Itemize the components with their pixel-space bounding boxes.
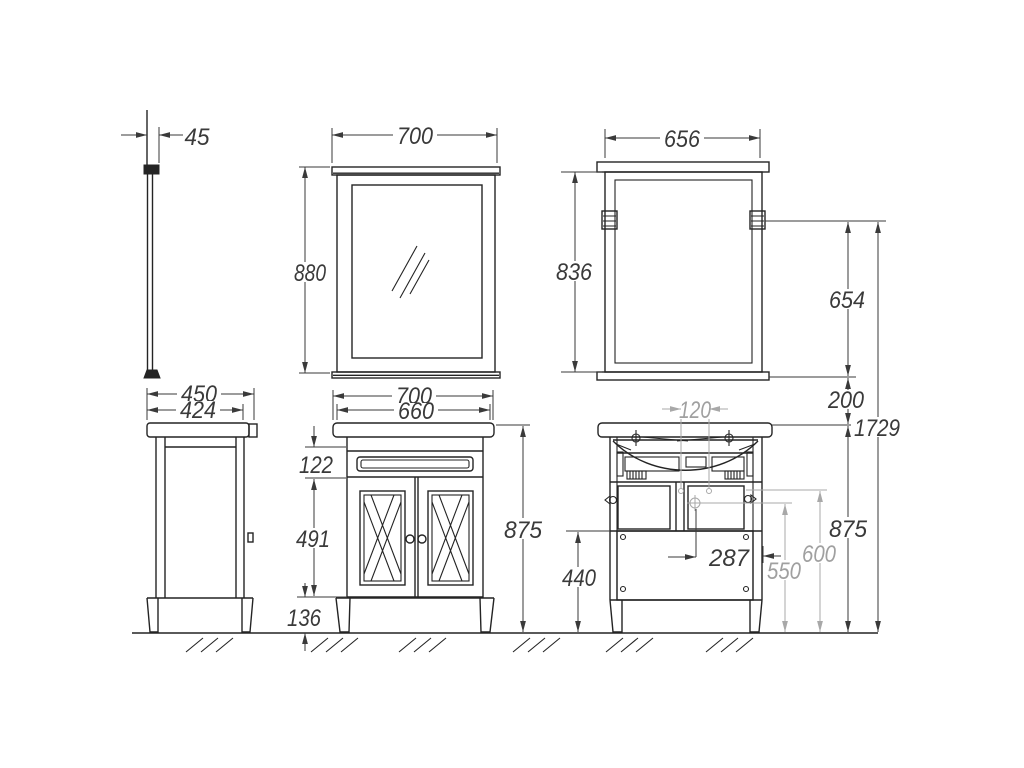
drawer-panel-inner [361, 460, 469, 468]
svg-text:875: 875 [829, 516, 868, 543]
side-view-mirror-profile [144, 110, 160, 378]
rear-right-leg [750, 600, 762, 632]
dim-200-label: 200 [824, 387, 868, 414]
svg-text:491: 491 [296, 526, 330, 553]
dim-660-label: 660 [394, 398, 438, 425]
svg-text:836: 836 [556, 259, 593, 286]
svg-text:136: 136 [287, 605, 322, 632]
svg-text:120: 120 [679, 397, 712, 424]
svg-text:600: 600 [802, 541, 837, 568]
left-support-foot [627, 471, 646, 479]
svg-text:287: 287 [708, 545, 751, 572]
svg-text:654: 654 [829, 287, 865, 314]
front-view-cabinet [333, 423, 494, 632]
floor [132, 633, 878, 652]
dim-440-label: 440 [559, 565, 599, 592]
countertop-front [333, 423, 494, 437]
side-knob [248, 533, 253, 542]
backsplash-tab [249, 424, 257, 437]
dim-120-label: 120 [662, 397, 728, 424]
dim-550-label: 550 [764, 558, 804, 585]
right-door-cross [432, 495, 469, 581]
dim-122-label: 122 [296, 452, 336, 479]
mirror-rear-bottom-cap [597, 372, 769, 380]
svg-text:200: 200 [827, 387, 864, 414]
svg-text:122: 122 [299, 452, 333, 479]
mirror-top-cap-side [144, 165, 159, 174]
side-view-cabinet [147, 423, 257, 632]
front-view-mirror [332, 167, 500, 378]
mirror-bottom-cap-side [144, 370, 160, 378]
countertop-rear [598, 423, 772, 437]
rear-view-cabinet [598, 423, 772, 632]
side-back-leg [242, 598, 253, 632]
front-left-leg [336, 598, 350, 632]
countertop-side [147, 423, 249, 437]
dim-656-label: 656 [660, 126, 704, 153]
svg-text:660: 660 [398, 398, 435, 425]
dim-136-label: 136 [284, 605, 324, 632]
drain-assembly-right [712, 457, 744, 471]
mirror-frame [337, 175, 495, 372]
svg-text:1729: 1729 [854, 415, 900, 442]
inlet-point-left [679, 489, 684, 494]
dim-700-mirror-label: 700 [393, 123, 437, 150]
front-right-leg [480, 598, 494, 632]
right-support-foot [725, 471, 744, 479]
floor-hatching [186, 638, 753, 652]
mirror-rear-frame [605, 172, 762, 372]
left-door-back [618, 486, 670, 529]
side-front-leg [147, 598, 158, 632]
left-door [360, 491, 405, 585]
technical-drawing: 45 880 700 656 836 450 424 700 [0, 0, 1024, 768]
svg-text:45: 45 [185, 124, 211, 151]
mirror-reflection-lines [392, 246, 429, 298]
inlet-point-right [707, 489, 712, 494]
rear-view-mirror [597, 162, 769, 380]
drain-assembly-center [686, 457, 706, 467]
rear-left-leg [610, 600, 622, 632]
svg-text:424: 424 [180, 397, 216, 424]
dim-424-label: 424 [176, 397, 220, 424]
right-door [428, 491, 473, 585]
side-view [144, 110, 257, 632]
dim-287-label: 287 [708, 545, 751, 572]
left-door-knob [406, 535, 414, 543]
panel-screw [744, 587, 749, 592]
svg-text:550: 550 [767, 558, 802, 585]
panel-screw [744, 535, 749, 540]
dim-880-label: 880 [291, 260, 329, 287]
left-hinge [605, 496, 617, 504]
panel-screw [621, 535, 626, 540]
svg-text:875: 875 [504, 517, 543, 544]
dim-836-label: 836 [552, 259, 596, 286]
right-hinge [745, 495, 757, 503]
dim-1729-label: 1729 [851, 415, 903, 442]
right-door-knob [418, 535, 426, 543]
dim-875-rear-label: 875 [826, 516, 870, 543]
mirror-rear-top-cap [597, 162, 769, 172]
dim-654-label: 654 [825, 287, 869, 314]
svg-text:880: 880 [294, 260, 327, 287]
svg-text:440: 440 [562, 565, 597, 592]
svg-text:656: 656 [664, 126, 701, 153]
dim-600-label: 600 [799, 541, 839, 568]
dim-45 [121, 127, 183, 163]
dim-491-label: 491 [293, 526, 333, 553]
left-door-cross [364, 495, 401, 581]
panel-screw [621, 587, 626, 592]
drain-point [687, 495, 703, 511]
mirror-rear-back-panel [615, 180, 752, 363]
dim-875-front-label: 875 [501, 517, 545, 544]
svg-text:700: 700 [397, 123, 434, 150]
drawing-page: 45 880 700 656 836 450 424 700 [0, 0, 1024, 768]
dim-45-label: 45 [185, 124, 211, 151]
drawer-panel [357, 457, 473, 471]
mirror-glass [352, 185, 482, 358]
